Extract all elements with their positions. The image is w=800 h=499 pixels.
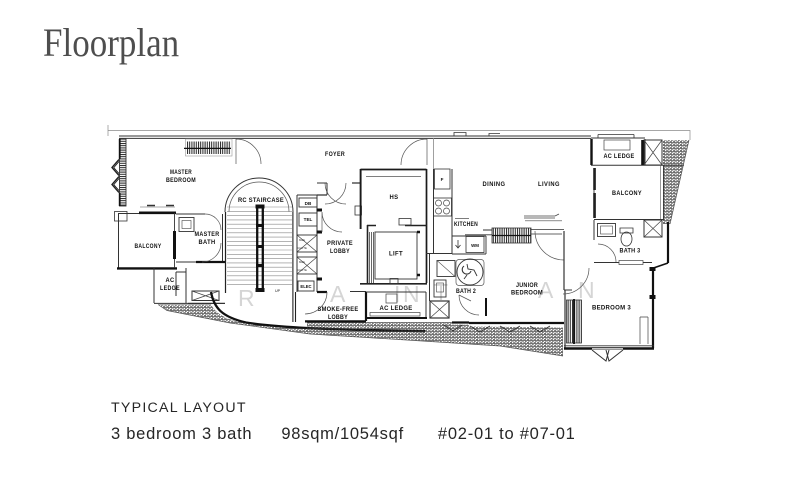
svg-text:BEDROOM: BEDROOM — [511, 290, 543, 297]
svg-text:SMOKE-FREE: SMOKE-FREE — [318, 306, 359, 313]
svg-text:DB: DB — [305, 201, 312, 206]
svg-text:HS: HS — [390, 194, 399, 201]
svg-text:ELEC: ELEC — [300, 284, 311, 289]
svg-text:MASTER: MASTER — [195, 231, 220, 238]
svg-text:LOBBY: LOBBY — [330, 248, 350, 255]
svg-text:KITCHEN: KITCHEN — [454, 221, 478, 228]
svg-text:BATH: BATH — [199, 239, 216, 246]
svg-text:AC LEDGE: AC LEDGE — [604, 153, 635, 160]
svg-text:M&E: M&E — [299, 238, 305, 242]
svg-text:CHUTE: CHUTE — [297, 246, 307, 250]
svg-text:BATH 3: BATH 3 — [620, 248, 641, 255]
svg-text:WM: WM — [471, 243, 479, 248]
svg-text:BEDROOM: BEDROOM — [166, 177, 196, 184]
svg-text:LIVING: LIVING — [538, 181, 560, 188]
svg-text:R: R — [238, 285, 255, 311]
svg-text:LIFT: LIFT — [389, 251, 403, 258]
svg-text:TEL: TEL — [304, 217, 313, 222]
svg-text:F: F — [441, 177, 444, 182]
svg-text:FOYER: FOYER — [325, 151, 345, 158]
svg-text:JUNIOR: JUNIOR — [516, 282, 538, 289]
svg-text:UP: UP — [275, 289, 281, 293]
svg-text:PRIVATE: PRIVATE — [327, 240, 353, 247]
svg-text:MASTER: MASTER — [170, 169, 192, 176]
svg-text:M&E: M&E — [299, 260, 305, 264]
svg-text:AC: AC — [166, 277, 175, 284]
svg-text:LEDGE: LEDGE — [160, 285, 180, 292]
svg-text:DINING: DINING — [483, 181, 506, 188]
svg-text:BEDROOM 3: BEDROOM 3 — [592, 305, 631, 312]
svg-text:RC STAIRCASE: RC STAIRCASE — [238, 197, 284, 204]
svg-text:BALCONY: BALCONY — [135, 243, 162, 250]
svg-text:A: A — [330, 281, 346, 307]
svg-text:N: N — [403, 281, 420, 307]
svg-text:CHUTE: CHUTE — [297, 268, 307, 272]
svg-text:AC LEDGE: AC LEDGE — [380, 305, 413, 312]
svg-text:BATH 2: BATH 2 — [456, 288, 476, 295]
svg-text:BALCONY: BALCONY — [612, 190, 642, 197]
svg-text:LOBBY: LOBBY — [328, 314, 348, 321]
svg-text:N: N — [578, 277, 595, 303]
